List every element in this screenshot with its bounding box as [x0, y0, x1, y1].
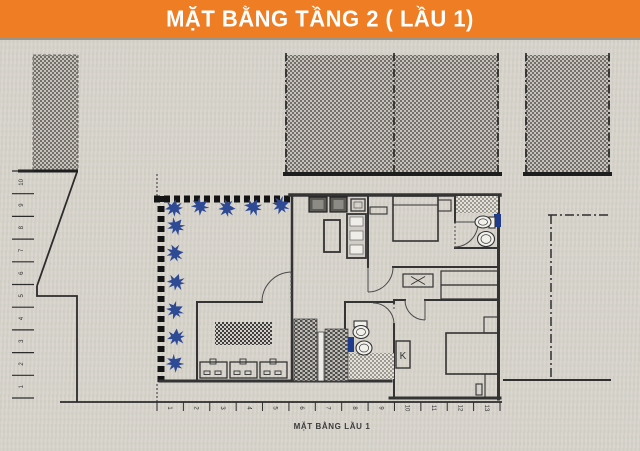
wardrobe-long [441, 271, 498, 299]
bath-floor-hatch [349, 353, 394, 379]
cabinet-k-label: K [400, 351, 407, 362]
bottom-dimension-ticks: 12345678910111213 [157, 402, 500, 412]
plant-icon [166, 244, 185, 263]
stairs [294, 319, 348, 381]
svg-text:9: 9 [377, 406, 383, 410]
bedroom-bottom-furniture: K [396, 317, 498, 398]
door-bathroom-middle [373, 303, 394, 324]
door-marker [348, 337, 354, 352]
bathroom-middle [348, 321, 394, 379]
cabinet-k: K [396, 341, 410, 368]
svg-text:12: 12 [456, 405, 462, 412]
study-room-furniture [309, 197, 366, 258]
shower-floor-hatch [456, 196, 498, 213]
floor-plan-svg: K 10987654321 12345678910111213 [0, 0, 640, 451]
hatch-block-top-left [18, 55, 78, 171]
svg-text:7: 7 [325, 406, 331, 410]
wall-shelf [370, 207, 387, 214]
sink-icon [356, 341, 372, 355]
bedroom-top-furniture [370, 196, 451, 241]
nightstand [438, 200, 451, 211]
side-table [485, 374, 498, 398]
sofa-unit [260, 359, 287, 378]
svg-text:2: 2 [193, 406, 199, 410]
hatch-block-top-center [283, 53, 502, 174]
bed-top [393, 196, 438, 241]
svg-text:13: 13 [483, 405, 489, 412]
svg-text:8: 8 [19, 225, 25, 229]
hatch-block-top-right [523, 53, 612, 174]
rug-hatch [215, 322, 272, 345]
door-bedroom-bottom [405, 300, 425, 320]
bathroom-top [456, 196, 501, 247]
toilet-icon [353, 321, 369, 339]
lamp [476, 384, 482, 395]
svg-text:7: 7 [19, 248, 25, 252]
svg-text:3: 3 [219, 406, 225, 410]
sofa-units [200, 359, 287, 378]
property-line-right [503, 215, 611, 380]
corridor-furniture [403, 271, 498, 299]
svg-text:8: 8 [351, 406, 357, 410]
sofa-unit [230, 359, 257, 378]
left-dimension-ticks: 10987654321 [12, 171, 34, 398]
bed-bottom [446, 333, 498, 374]
svg-text:11: 11 [430, 405, 436, 412]
cabinet-light [351, 199, 365, 211]
table-x [403, 274, 433, 287]
svg-text:1: 1 [166, 406, 172, 410]
page-title: MẶT BẰNG TẦNG 2 ( LẦU 1) [166, 5, 474, 32]
svg-text:3: 3 [19, 339, 25, 343]
svg-text:5: 5 [272, 406, 278, 410]
plant-icon [165, 271, 187, 293]
shelf-column [347, 214, 366, 258]
svg-text:4: 4 [245, 406, 251, 410]
cabinet-dark [309, 197, 327, 212]
plant-icon [164, 299, 187, 322]
desk [324, 220, 340, 252]
terrace-plants [163, 194, 292, 375]
plot-boundary-left [37, 172, 77, 402]
sofa-unit [200, 359, 227, 378]
plant-icon [167, 328, 186, 347]
living-room [200, 322, 287, 378]
pillow [484, 317, 498, 333]
cabinet-dark [330, 197, 347, 212]
header-banner: MẶT BẰNG TẦNG 2 ( LẦU 1) [0, 0, 640, 40]
toilet-icon [475, 216, 495, 228]
svg-text:2: 2 [19, 362, 25, 366]
door-bathroom-top [455, 222, 478, 248]
svg-text:1: 1 [19, 384, 25, 388]
drawing-caption: MẶT BẰNG LẦU 1 [26, 422, 638, 435]
svg-text:6: 6 [298, 406, 304, 410]
svg-text:10: 10 [19, 178, 25, 185]
svg-text:6: 6 [19, 271, 25, 275]
plant-icon [163, 351, 187, 375]
svg-text:4: 4 [19, 316, 25, 320]
door-study [368, 267, 393, 292]
door-living-room [262, 272, 291, 302]
svg-text:9: 9 [19, 203, 25, 207]
plant-icon [164, 214, 188, 238]
svg-text:10: 10 [404, 405, 410, 412]
sink-icon [478, 232, 495, 247]
door-arcs [262, 222, 478, 324]
svg-text:5: 5 [19, 294, 25, 298]
